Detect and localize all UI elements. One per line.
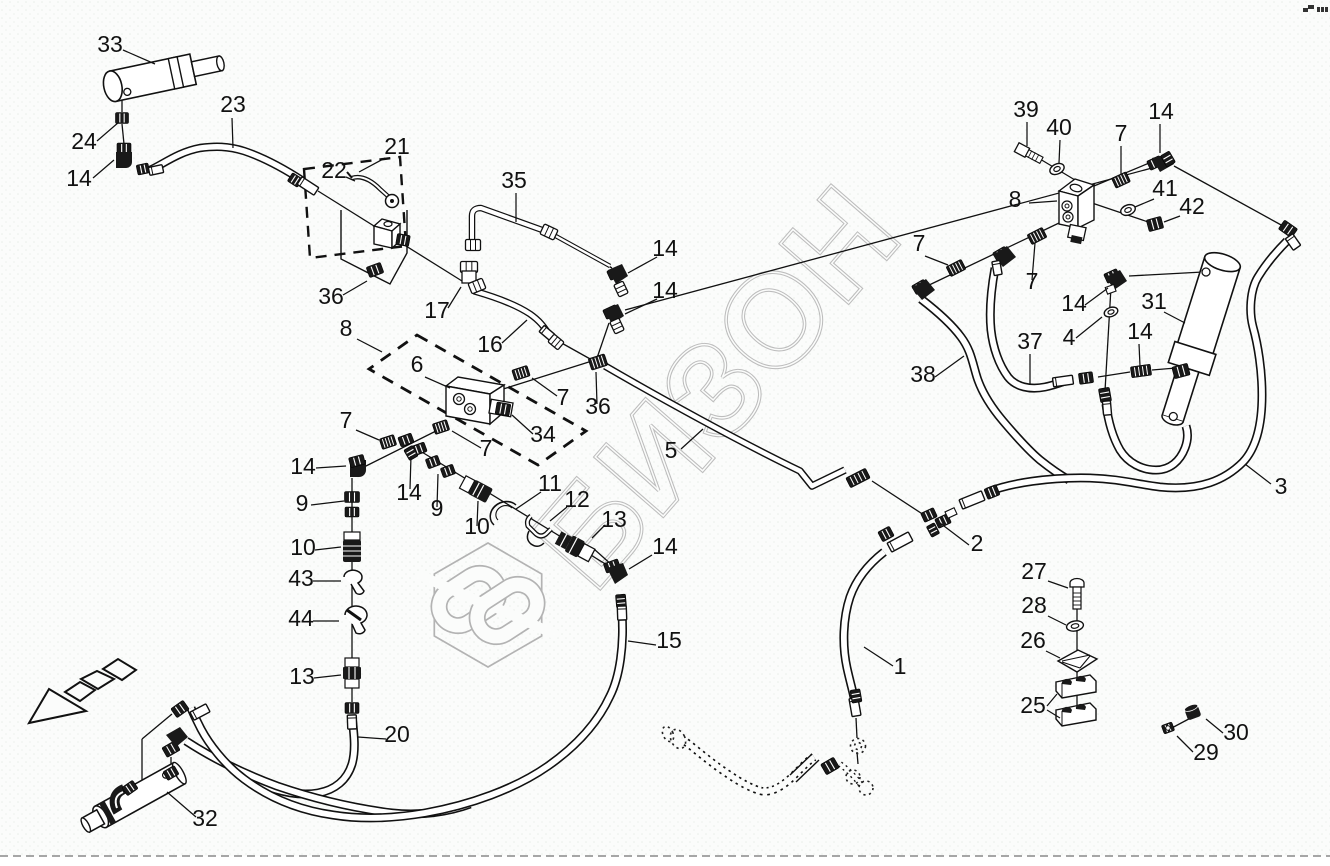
svg-text:14: 14 xyxy=(1127,318,1153,344)
svg-text:21: 21 xyxy=(384,133,410,159)
svg-text:17: 17 xyxy=(424,297,450,323)
svg-text:16: 16 xyxy=(477,331,503,357)
svg-text:14: 14 xyxy=(1061,290,1087,316)
svg-text:4: 4 xyxy=(1063,324,1076,350)
svg-text:10: 10 xyxy=(290,534,316,560)
svg-text:12: 12 xyxy=(564,486,590,512)
svg-text:7: 7 xyxy=(1115,120,1128,146)
svg-text:3: 3 xyxy=(1275,473,1288,499)
svg-text:20: 20 xyxy=(384,721,410,747)
svg-text:39: 39 xyxy=(1013,96,1039,122)
svg-text:2: 2 xyxy=(971,530,984,556)
svg-text:41: 41 xyxy=(1152,175,1178,201)
svg-text:25: 25 xyxy=(1020,692,1046,718)
svg-text:14: 14 xyxy=(652,533,678,559)
svg-text:13: 13 xyxy=(289,663,315,689)
svg-text:32: 32 xyxy=(192,805,218,831)
svg-text:35: 35 xyxy=(501,167,527,193)
svg-text:15: 15 xyxy=(656,627,682,653)
svg-text:43: 43 xyxy=(288,565,314,591)
svg-text:7: 7 xyxy=(480,435,493,461)
svg-text:22: 22 xyxy=(321,157,347,183)
svg-text:14: 14 xyxy=(290,453,316,479)
svg-text:1: 1 xyxy=(894,653,907,679)
svg-text:44: 44 xyxy=(288,605,314,631)
svg-text:37: 37 xyxy=(1017,328,1043,354)
svg-text:11: 11 xyxy=(538,470,562,496)
svg-text:14: 14 xyxy=(66,165,92,191)
svg-text:14: 14 xyxy=(1148,98,1174,124)
svg-text:9: 9 xyxy=(296,490,309,516)
svg-text:5: 5 xyxy=(665,437,678,463)
svg-text:27: 27 xyxy=(1021,558,1047,584)
svg-text:7: 7 xyxy=(557,384,570,410)
svg-text:24: 24 xyxy=(71,128,97,154)
svg-text:38: 38 xyxy=(910,361,936,387)
svg-text:13: 13 xyxy=(601,506,627,532)
svg-text:40: 40 xyxy=(1046,114,1072,140)
svg-text:6: 6 xyxy=(411,351,424,377)
svg-text:23: 23 xyxy=(220,91,246,117)
svg-text:33: 33 xyxy=(97,31,123,57)
svg-text:26: 26 xyxy=(1020,627,1046,653)
svg-text:8: 8 xyxy=(340,315,353,341)
svg-text:30: 30 xyxy=(1223,719,1249,745)
svg-text:29: 29 xyxy=(1193,739,1219,765)
svg-text:7: 7 xyxy=(913,230,926,256)
svg-text:42: 42 xyxy=(1179,193,1205,219)
svg-text:7: 7 xyxy=(1026,268,1039,294)
svg-text:34: 34 xyxy=(530,421,556,447)
svg-text:14: 14 xyxy=(396,479,422,505)
svg-text:36: 36 xyxy=(318,283,344,309)
svg-text:28: 28 xyxy=(1021,592,1047,618)
svg-text:31: 31 xyxy=(1141,288,1167,314)
svg-text:7: 7 xyxy=(340,407,353,433)
svg-text:36: 36 xyxy=(585,393,611,419)
svg-text:8: 8 xyxy=(1009,186,1022,212)
